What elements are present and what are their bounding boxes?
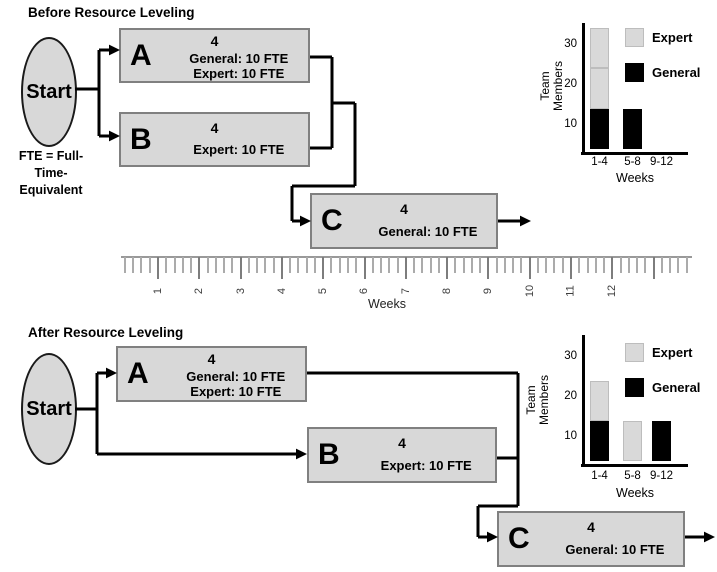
ruler-tick-minor (140, 257, 142, 273)
legend-swatch-general (625, 378, 644, 397)
ruler-week-number: 4 (276, 288, 288, 294)
bar-segment-expert (623, 421, 642, 461)
ruler-tick-major (570, 257, 572, 279)
after-section-title: After Resource Leveling (28, 325, 183, 340)
ruler-tick-minor (587, 257, 589, 273)
ruler-tick-minor (355, 257, 357, 273)
chart-ytick-label: 10 (549, 430, 577, 442)
ruler-tick-minor (264, 257, 266, 273)
legend-swatch-expert (625, 28, 644, 47)
ruler-tick-minor (504, 257, 506, 273)
ruler-tick-minor (231, 257, 233, 273)
ruler-tick-major (487, 257, 489, 279)
ruler-tick-minor (297, 257, 299, 273)
bar-segment-general (623, 109, 642, 150)
legend-swatch-general (625, 63, 644, 82)
chart-y-axis-title-line: Members (538, 375, 551, 425)
ruler-tick-major (240, 257, 242, 279)
ruler-week-number: 3 (235, 288, 247, 294)
ruler-week-number: 1 (152, 288, 164, 294)
ruler-tick-minor (132, 257, 134, 273)
task-duration: 4 (312, 201, 496, 217)
ruler-week-label: 9 (477, 279, 499, 303)
task-fte-line: Expert: 10 FTE (177, 66, 300, 81)
ruler-tick-minor (537, 257, 539, 273)
task-box-c-before: C 4 General: 10 FTE (310, 193, 498, 249)
ruler-tick-minor (454, 257, 456, 273)
ruler-tick-minor (636, 257, 638, 273)
ruler-tick-minor (496, 257, 498, 273)
ruler-tick-minor (661, 257, 663, 273)
task-box-a-before: A 4 General: 10 FTE Expert: 10 FTE (119, 28, 310, 83)
ruler-tick-minor (306, 257, 308, 273)
start-node-before: Start (21, 37, 77, 147)
chart-y-axis-after (582, 335, 585, 467)
ruler-week-label: 5 (312, 279, 334, 303)
ruler-week-number: 6 (359, 288, 371, 294)
chart-y-axis-before (582, 23, 585, 155)
ruler-week-label: 3 (230, 279, 252, 303)
bar-segment-general (590, 421, 609, 461)
ruler-tick-minor (479, 257, 481, 273)
chart-category-label: 9-12 (640, 470, 684, 482)
chart-ytick-label: 10 (549, 118, 577, 130)
bar-segment-expert (590, 381, 609, 421)
ruler-tick-minor (471, 257, 473, 273)
task-fte-line: Expert: 10 FTE (365, 458, 488, 473)
chart-category-label: 9-12 (640, 156, 684, 168)
ruler-week-number: 12 (606, 285, 618, 297)
ruler-week-number: 5 (317, 288, 329, 294)
task-duration: 4 (121, 120, 308, 136)
ruler-tick-minor (149, 257, 151, 273)
chart-x-axis-title-after: Weeks (595, 486, 675, 500)
chart-ytick-label: 30 (549, 38, 577, 50)
start-node-label: Start (26, 81, 72, 104)
ruler-week-number: 2 (193, 288, 205, 294)
task-fte-line: General: 10 FTE (554, 542, 675, 557)
ruler-week-label: 8 (436, 279, 458, 303)
start-node-after: Start (21, 353, 77, 465)
ruler-tick-minor (289, 257, 291, 273)
task-fte-line: General: 10 FTE (177, 51, 300, 66)
task-duration: 4 (121, 33, 308, 49)
task-fte-line: Expert: 10 FTE (177, 142, 300, 157)
ruler-week-number: 11 (565, 285, 577, 296)
chart-y-axis-title-before: TeamMembers (539, 61, 565, 111)
ruler-tick-major (529, 257, 531, 279)
ruler-tick-minor (463, 257, 465, 273)
chart-ytick-label: 20 (549, 390, 577, 402)
fte-note-line: Time- (2, 165, 100, 182)
ruler-tick-major (198, 257, 200, 279)
bar-segment-general (652, 421, 671, 461)
chart-y-axis-title-after: TeamMembers (525, 375, 551, 425)
diagram-canvas: Before Resource Leveling After Resource … (0, 0, 717, 572)
ruler-tick-major (281, 257, 283, 279)
ruler-tick-minor (413, 257, 415, 273)
arrowhead (520, 216, 531, 227)
task-duration: 4 (499, 519, 683, 535)
bar-segment-expert (590, 68, 609, 109)
ruler-tick-minor (595, 257, 597, 273)
ruler-tick-minor (686, 257, 688, 273)
ruler-week-label: 6 (354, 279, 376, 303)
start-node-label: Start (26, 398, 72, 421)
ruler-tick-minor (190, 257, 192, 273)
chart-ytick-label: 30 (549, 350, 577, 362)
ruler-tick-major (157, 257, 159, 279)
ruler-week-label: 2 (188, 279, 210, 303)
ruler-tick-minor (421, 257, 423, 273)
ruler-tick-minor (430, 257, 432, 273)
ruler-tick-minor (644, 257, 646, 273)
ruler-week-label: 7 (395, 279, 417, 303)
ruler-tick-minor (620, 257, 622, 273)
bar-segment-general (590, 109, 609, 150)
ruler-tick-major (611, 257, 613, 279)
task-fte-line: General: 10 FTE (174, 369, 297, 384)
ruler-week-number: 8 (441, 288, 453, 294)
task-duration: 4 (309, 435, 495, 451)
ruler-tick-major (653, 257, 655, 279)
legend-label-general: General (652, 380, 700, 395)
ruler-tick-minor (215, 257, 217, 273)
chart-x-axis-title-before: Weeks (595, 171, 675, 185)
ruler-tick-minor (438, 257, 440, 273)
ruler-tick-minor (512, 257, 514, 273)
ruler-week-label: 4 (271, 279, 293, 303)
ruler-tick-minor (677, 257, 679, 273)
ruler-tick-minor (628, 257, 630, 273)
ruler-week-label: 10 (519, 279, 541, 303)
chart-x-axis-after (581, 464, 688, 467)
ruler-tick-minor (562, 257, 564, 273)
fte-note-line: Equivalent (2, 182, 100, 199)
ruler-tick-minor (165, 257, 167, 273)
ruler-tick-minor (380, 257, 382, 273)
legend-label-expert: Expert (652, 345, 692, 360)
ruler-tick-minor (248, 257, 250, 273)
ruler-tick-minor (314, 257, 316, 273)
ruler-tick-minor (545, 257, 547, 273)
legend-label-expert: Expert (652, 30, 692, 45)
ruler-tick-minor (182, 257, 184, 273)
arrowhead (704, 532, 715, 543)
legend-label-general: General (652, 65, 700, 80)
ruler-tick-minor (347, 257, 349, 273)
ruler-tick-minor (124, 257, 126, 273)
ruler-tick-minor (372, 257, 374, 273)
task-fte-line: General: 10 FTE (367, 224, 488, 239)
ruler-tick-minor (330, 257, 332, 273)
task-box-b-after: B 4 Expert: 10 FTE (307, 427, 497, 483)
ruler-week-number: 7 (400, 288, 412, 294)
legend-swatch-expert (625, 343, 644, 362)
bar-segment-expert (590, 28, 609, 69)
ruler-tick-minor (669, 257, 671, 273)
ruler-tick-major (322, 257, 324, 279)
task-box-b-before: B 4 Expert: 10 FTE (119, 112, 310, 167)
ruler-tick-minor (553, 257, 555, 273)
ruler-week-number: 9 (482, 288, 494, 294)
ruler-week-label: 11 (560, 279, 582, 303)
task-box-a-after: A 4 General: 10 FTE Expert: 10 FTE (116, 346, 307, 402)
fte-note-line: FTE = Full- (2, 148, 100, 165)
connector-start-ab-before (75, 50, 110, 136)
ruler-tick-minor (520, 257, 522, 273)
ruler-tick-minor (578, 257, 580, 273)
ruler-tick-major (364, 257, 366, 279)
ruler-week-number: 10 (524, 285, 536, 297)
ruler-tick-minor (339, 257, 341, 273)
ruler-tick-minor (273, 257, 275, 273)
before-section-title: Before Resource Leveling (28, 5, 195, 20)
task-box-c-after: C 4 General: 10 FTE (497, 511, 685, 567)
ruler-tick-minor (223, 257, 225, 273)
task-duration: 4 (118, 351, 305, 367)
fte-note: FTE = Full- Time- Equivalent (2, 148, 100, 199)
arrowhead (296, 449, 307, 460)
ruler-week-label: 1 (147, 279, 169, 303)
ruler-tick-minor (603, 257, 605, 273)
ruler-tick-minor (174, 257, 176, 273)
ruler-week-label: 12 (601, 279, 623, 303)
ruler-tick-major (405, 257, 407, 279)
ruler-tick-minor (207, 257, 209, 273)
ruler-tick-minor (256, 257, 258, 273)
chart-x-axis-before (581, 152, 688, 155)
chart-y-axis-title-line: Members (552, 61, 565, 111)
ruler-tick-minor (388, 257, 390, 273)
task-fte-line: Expert: 10 FTE (174, 384, 297, 399)
ruler-tick-major (446, 257, 448, 279)
ruler-tick-minor (397, 257, 399, 273)
